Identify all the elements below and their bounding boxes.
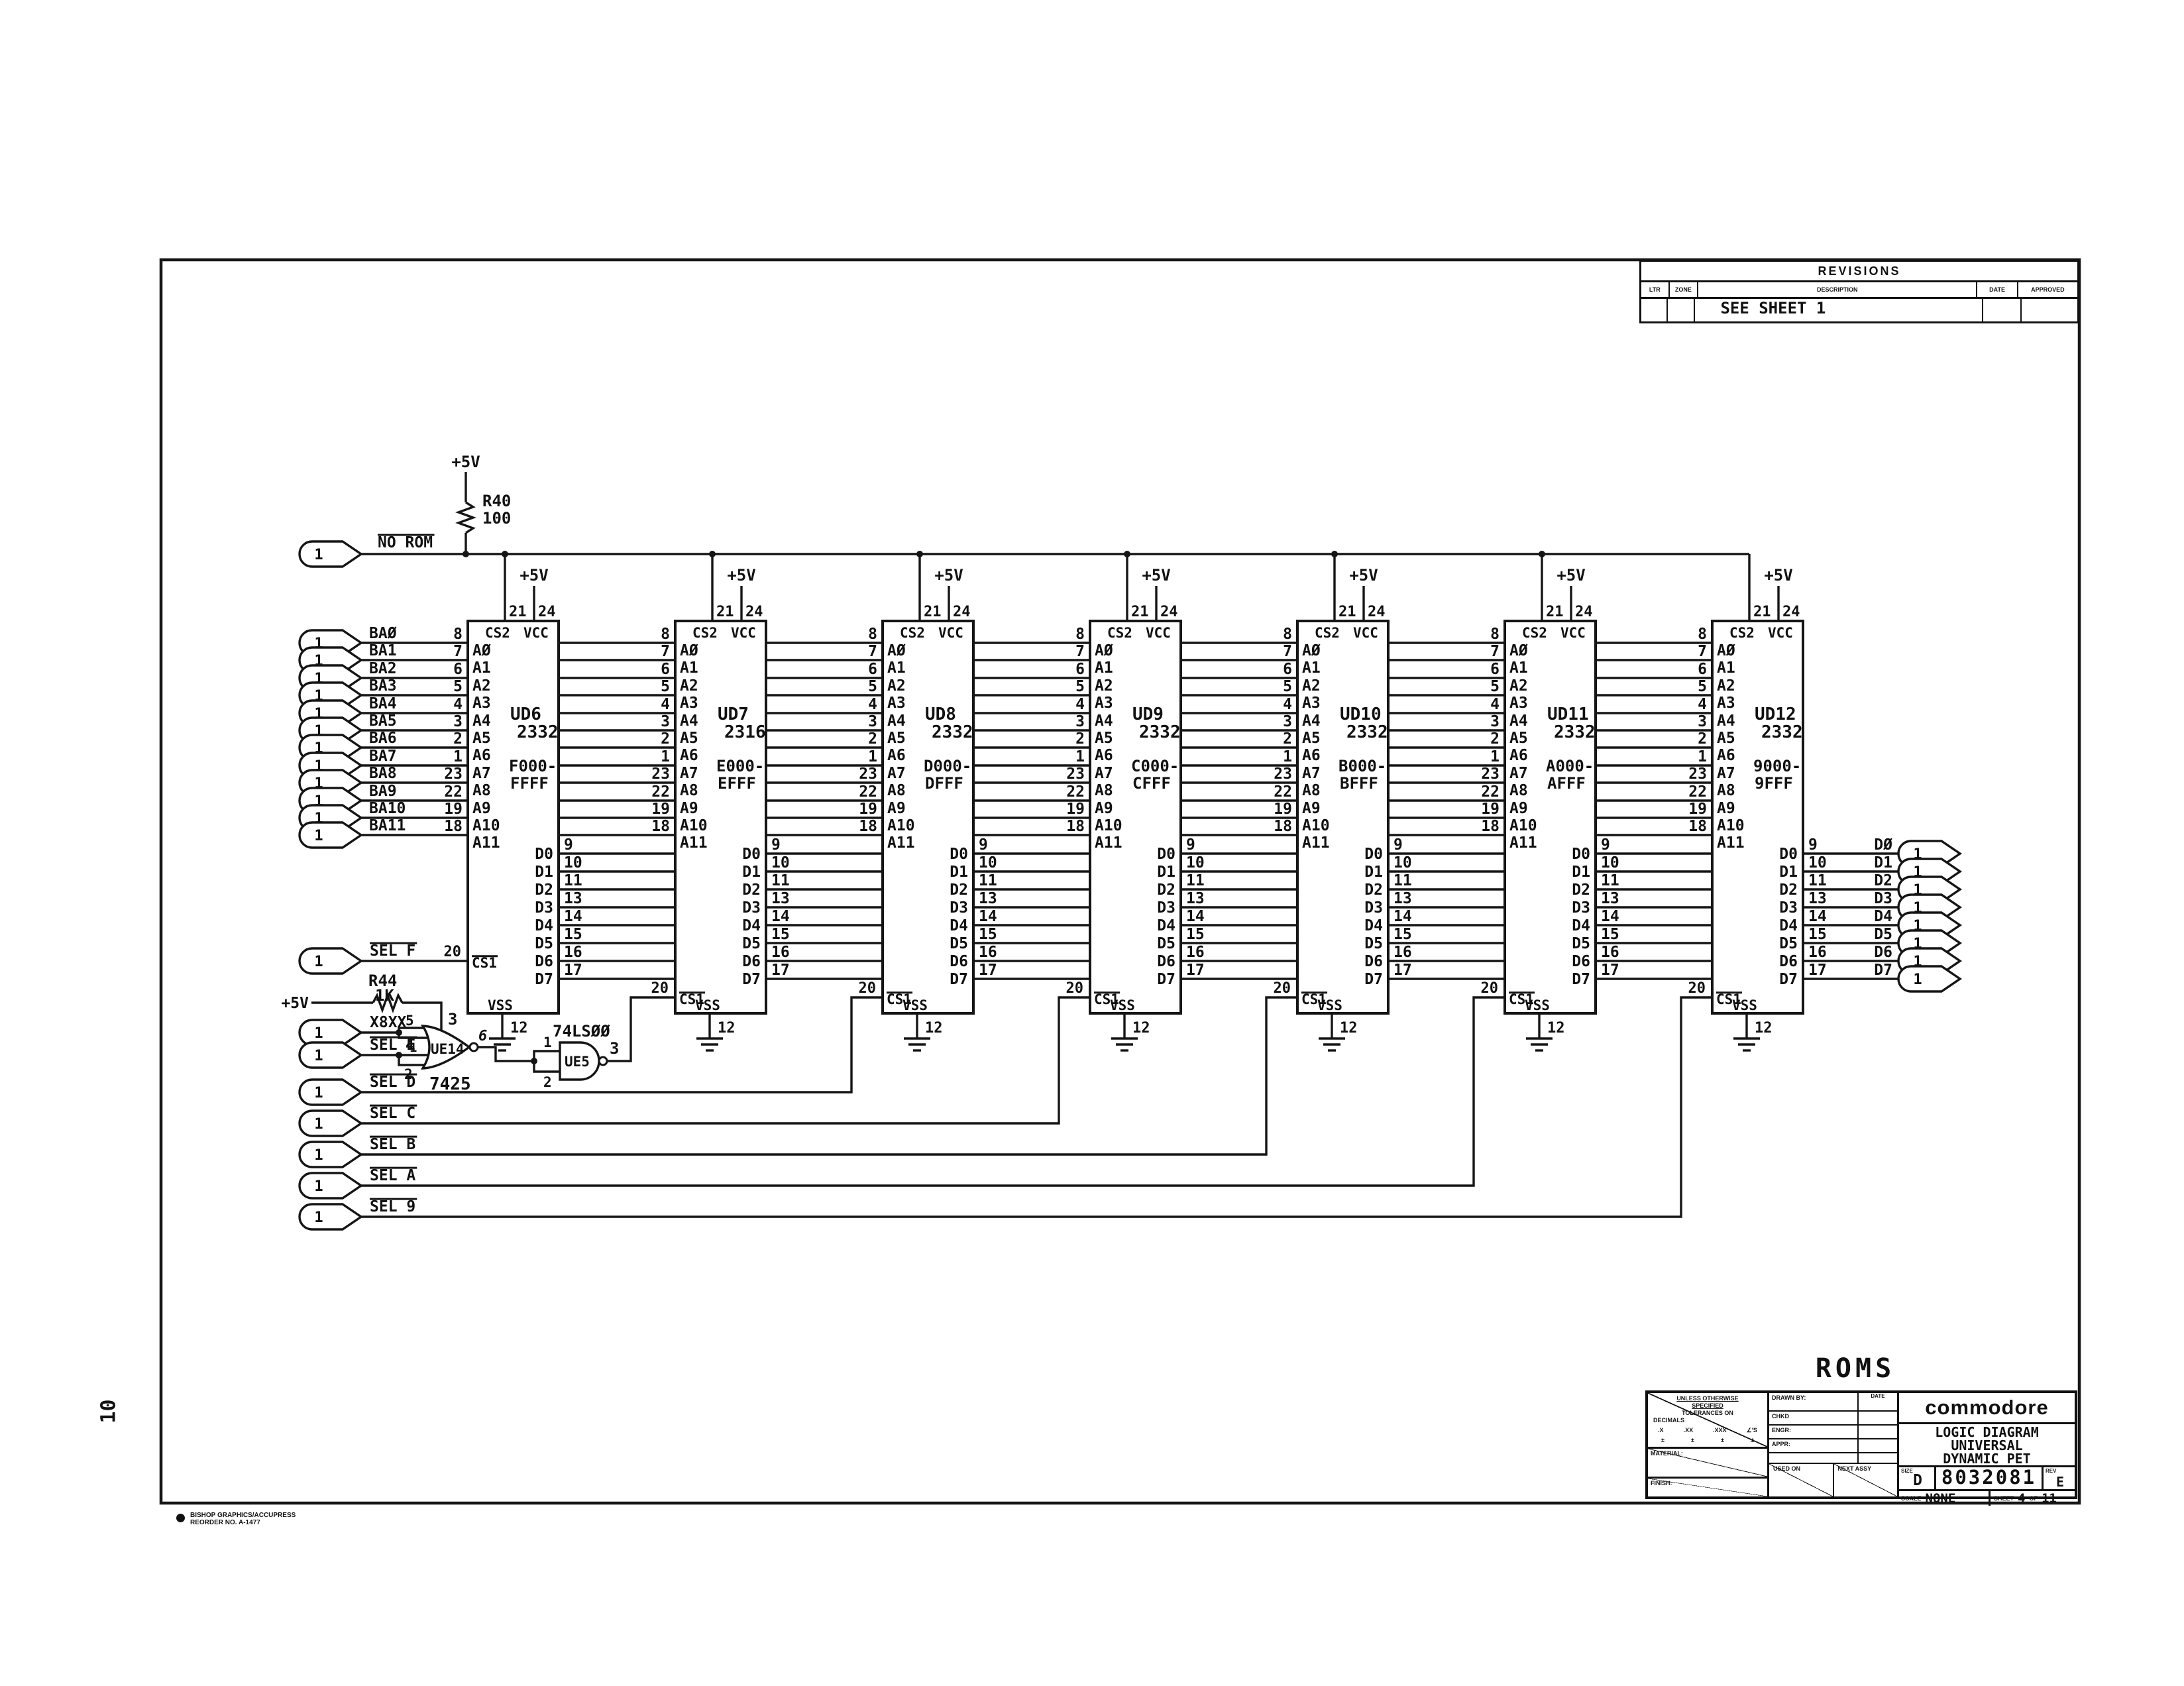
chip-pin-label: VSS [1732, 997, 1757, 1013]
chip-pin-label: A3 [1717, 695, 1735, 712]
chip-pin-label: A1 [1095, 659, 1113, 677]
chip-pin-label: D4 [1779, 917, 1798, 934]
pin-number: 6 [478, 1028, 487, 1044]
chip-pin-label: A2 [680, 677, 698, 695]
pin-number: 8 [1490, 626, 1500, 643]
pin-number: 23 [1481, 765, 1500, 783]
chip-pin-label: AØ [1717, 642, 1735, 659]
pin-number: 11 [1393, 872, 1412, 889]
pin-number: 17 [1186, 962, 1205, 979]
chip-pin-label: A10 [1717, 817, 1745, 834]
signal-label: BA3 [369, 677, 397, 695]
signal-label: BA6 [369, 730, 397, 747]
rail-label: +5V [519, 566, 548, 585]
chip-pin-label: A2 [472, 677, 491, 695]
pin-number: 23 [651, 765, 670, 783]
approval-column: DRAWN BY: DATE CHKD ENGR: APPR: USED ON [1769, 1393, 1899, 1496]
gate-part: 74LSØØ [553, 1022, 610, 1040]
chip-ref: UD12 [1755, 704, 1796, 724]
revision-row: SEE SHEET 1 [1641, 299, 2077, 321]
chip-part: 2332 [1346, 722, 1388, 742]
pin-number: 13 [1808, 890, 1827, 907]
pin-number: 2 [868, 730, 877, 748]
chip-pin-label: D2 [1572, 881, 1590, 899]
pin-number: 9 [1393, 836, 1403, 854]
chip-address-range: AFFF [1547, 774, 1586, 793]
pin-number: 21 [1131, 604, 1149, 620]
signal-label: BA2 [369, 660, 397, 677]
junction-dot [463, 551, 469, 557]
pin-number: 16 [564, 944, 582, 961]
pin-number: 22 [651, 783, 670, 801]
pin-number: 16 [979, 944, 997, 961]
data-connectors: 1DØ1D11D21D31D41D51D61D7 [1874, 836, 1960, 991]
pin-number: 4 [1283, 696, 1292, 713]
chip-pin-label: AØ [887, 642, 906, 659]
chip-address-range: E000- [716, 757, 764, 775]
pin-number: 11 [771, 872, 790, 889]
chip-pin-label: A8 [1302, 782, 1321, 799]
pin-number: 9 [1601, 836, 1610, 854]
pin-number: 16 [771, 944, 790, 961]
chip-pin-label: CS1 [472, 955, 497, 971]
chip-pin-label: D5 [1572, 935, 1590, 952]
col-ltr: LTR [1641, 282, 1670, 297]
chip-pin-label: A11 [1717, 834, 1745, 852]
pin-number: 1 [453, 748, 463, 765]
pin-number: 7 [661, 643, 670, 660]
chip-pin-label: A5 [472, 730, 491, 747]
chip-pin-label: A3 [1302, 695, 1321, 712]
pin-number: 9 [771, 836, 781, 854]
pin-number: 3 [1283, 713, 1292, 730]
appr-cell: APPR: [1769, 1439, 1857, 1452]
title-block: UNLESS OTHERWISE SPECIFIED TOLERANCES ON… [1645, 1390, 2077, 1499]
pin-number: 6 [1490, 661, 1500, 678]
pin-number: 24 [953, 604, 971, 620]
pin-number: 23 [859, 765, 877, 783]
pin-number: 22 [1066, 783, 1085, 801]
pin-number: 3 [448, 1010, 457, 1029]
pin-number: 20 [444, 944, 462, 960]
pin-number: 2 [661, 730, 670, 748]
pin-number: 6 [661, 661, 670, 678]
chip-pin-label: D2 [1157, 881, 1175, 899]
chip-pin-label: D4 [1572, 917, 1590, 934]
pin-number: 11 [564, 872, 582, 889]
pin-number: 13 [1186, 890, 1205, 907]
connector-flag-icon [300, 1142, 361, 1167]
chip-pin-label: D3 [1779, 899, 1798, 917]
pin-number: 12 [925, 1020, 943, 1037]
chip-address-range: F000- [509, 757, 557, 775]
sheet-cell: SHEET 4 OF 11 [1991, 1491, 2075, 1506]
pin-number: 5 [661, 678, 670, 695]
connector-tag: 1 [314, 1178, 323, 1195]
signal-label: D2 [1874, 872, 1892, 889]
pin-number: 17 [1393, 962, 1412, 979]
pin-number: 14 [771, 908, 790, 925]
chip-pin-label: A9 [887, 800, 906, 817]
pin-number: 16 [1186, 944, 1205, 961]
chip-pin-label: D0 [1364, 846, 1383, 863]
chip-address-range: EFFF [718, 774, 756, 793]
signal-label: BA10 [369, 800, 406, 817]
chip-pin-label: A7 [1302, 765, 1321, 782]
chip-ref: UD9 [1132, 704, 1164, 724]
chip-pin-label: D6 [1572, 953, 1590, 970]
chip-pin-label: A2 [1095, 677, 1113, 695]
chip-address-range: CFFF [1132, 774, 1171, 793]
chip-pin-label: A8 [1095, 782, 1113, 799]
chip-pin-label: A6 [1302, 747, 1321, 764]
pin-number: 4 [1490, 696, 1500, 713]
pin-number: 24 [1368, 604, 1386, 620]
pin-number: 7 [453, 643, 463, 660]
company-logo: commodore [1899, 1393, 2075, 1424]
connector-tag: 1 [314, 1048, 323, 1064]
pin-number: 17 [1601, 962, 1619, 979]
pin-number: 14 [1186, 908, 1205, 925]
pin-number: 20 [1481, 980, 1499, 997]
pin-number: 23 [1688, 765, 1707, 783]
chip-pin-label: A6 [887, 747, 906, 764]
signal-label: D3 [1874, 890, 1892, 907]
signal-label: SEL 9 [370, 1198, 415, 1215]
margin-sheet-number: 10 [97, 1399, 121, 1423]
chip-pin-label: A4 [680, 712, 698, 730]
chip-pin-label: A4 [1302, 712, 1321, 730]
chip-pin-label: A2 [1717, 677, 1735, 695]
chip-pin-label: CS2 [692, 625, 718, 641]
pin-number: 9 [979, 836, 988, 854]
inverter-bubble-icon [599, 1057, 607, 1065]
signal-label: D6 [1874, 944, 1892, 961]
junction-dot [1124, 551, 1130, 557]
chip-pin-label: VCC [938, 625, 963, 641]
chip-pin-label: A1 [1509, 659, 1528, 677]
chip-pin-label: VCC [1560, 625, 1586, 641]
pin-number: 21 [1546, 604, 1564, 620]
chip-pin-label: D2 [950, 881, 968, 899]
chip-pin-label: D1 [950, 864, 968, 881]
rev-cell: REV E [2044, 1467, 2075, 1489]
pin-number: 8 [868, 626, 877, 643]
pin-number: 18 [1274, 818, 1292, 835]
chip-pin-label: D7 [535, 971, 553, 988]
chip-pin-label: A7 [472, 765, 491, 782]
pin-number: 18 [1481, 818, 1500, 835]
pin-number: 1 [868, 748, 877, 765]
chip-pin-label: A5 [1717, 730, 1735, 747]
pin-number: 16 [1601, 944, 1619, 961]
rail-label: +5V [934, 566, 963, 585]
chip-pin-label: D1 [1779, 864, 1798, 881]
scale-cell: SCALE NONE [1899, 1491, 1991, 1506]
pin-number: 19 [444, 801, 463, 818]
identity-column: commodore LOGIC DIAGRAM UNIVERSAL DYNAMI… [1899, 1393, 2075, 1496]
date-cell: DATE [1857, 1393, 1897, 1410]
chip-pin-label: A9 [680, 800, 698, 817]
gate-ref: UE5 [565, 1054, 590, 1070]
pin-number: 15 [1808, 926, 1827, 943]
chip-pin-label: A1 [887, 659, 906, 677]
chip-pin-label: D3 [535, 899, 553, 917]
chip-pin-label: CS2 [485, 625, 510, 641]
pin-number: 12 [1340, 1020, 1358, 1037]
pin-number: 12 [1755, 1020, 1773, 1037]
connector-tag: 1 [314, 1116, 323, 1133]
pin-number: 20 [651, 980, 669, 997]
chip-pin-label: A11 [1509, 834, 1537, 852]
signal-label: NO ROM [378, 534, 433, 551]
chip-pin-label: D7 [1364, 971, 1383, 988]
chip-pin-label: AØ [1509, 642, 1528, 659]
pin-number: 22 [1688, 783, 1707, 801]
signal-label: D4 [1874, 908, 1892, 925]
chip-pin-label: A11 [1095, 834, 1122, 852]
chip-pin-label: D1 [535, 864, 553, 881]
signal-label: D7 [1874, 962, 1892, 979]
chip-pin-label: D6 [535, 953, 553, 970]
chip-pin-label: D0 [1157, 846, 1175, 863]
chip-pin-label: D5 [1779, 935, 1798, 952]
chip-pin-label: A9 [472, 800, 491, 817]
chip-pin-label: A2 [1302, 677, 1321, 695]
gate-ref: UE14 [431, 1041, 464, 1057]
pin-number: 2 [1490, 730, 1500, 748]
chip-address-range: C000- [1131, 757, 1179, 775]
chip-address-range: BFFF [1340, 774, 1378, 793]
pin-number: 4 [1075, 696, 1085, 713]
revision-description: SEE SHEET 1 [1695, 299, 1983, 321]
signal-label: SEL F [370, 942, 415, 960]
col-approved: APPROVED [2018, 282, 2077, 297]
chip-pin-label: D4 [742, 917, 761, 934]
chip-ref: UD10 [1340, 704, 1382, 724]
chip-pin-label: VCC [1768, 625, 1793, 641]
pin-number: 12 [1547, 1020, 1565, 1037]
pin-number: 5 [868, 678, 877, 695]
pin-number: 22 [1481, 783, 1500, 801]
chip-address-range: D000- [924, 757, 971, 775]
pin-number: 11 [1808, 872, 1827, 889]
pin-number: 19 [1481, 801, 1500, 818]
chip-pin-label: A8 [680, 782, 698, 799]
pin-number: 2 [453, 730, 463, 748]
connector-tag: 1 [314, 1147, 323, 1164]
chip-pin-label: D3 [950, 899, 968, 917]
pin-number: 1 [1490, 748, 1500, 765]
chip-address-range: FFFF [510, 774, 549, 793]
pin-number: 24 [1782, 604, 1800, 620]
revisions-title: REVISIONS [1641, 262, 2077, 282]
pin-number: 17 [564, 962, 582, 979]
used-on-cell: USED ON [1769, 1464, 1834, 1496]
chip-pin-label: A6 [680, 747, 698, 764]
chip-part: 2332 [1554, 722, 1596, 742]
pin-number: 23 [1066, 765, 1085, 783]
pin-number: 18 [651, 818, 670, 835]
pin-number: 5 [1075, 678, 1085, 695]
pin-number: 6 [1698, 661, 1707, 678]
chip-address-range: 9FFF [1755, 774, 1793, 793]
connector-flag-icon [300, 822, 361, 848]
chip-pin-label: D1 [742, 864, 761, 881]
connector-flag-icon [300, 1204, 361, 1229]
signal-label: BAØ [369, 625, 397, 642]
pin-number: 3 [661, 713, 670, 730]
signal-label: BA11 [369, 817, 406, 834]
pin-number: 15 [1393, 926, 1412, 943]
pin-number: 16 [1808, 944, 1827, 961]
chip-pin-label: D0 [1779, 846, 1798, 863]
connector-flag-icon [300, 948, 361, 974]
rail-label: +5V [1349, 566, 1378, 585]
chip-pin-label: A10 [1302, 817, 1330, 834]
chip-pin-label: A4 [887, 712, 906, 730]
pin-number: 1 [1283, 748, 1292, 765]
chip-pin-label: A8 [1509, 782, 1528, 799]
drawing-caption: ROMS [1776, 1353, 1935, 1384]
pin-number: 7 [1075, 643, 1085, 660]
rev-value: E [2046, 1474, 2075, 1490]
pin-number: 15 [979, 926, 997, 943]
chip-pin-label: A1 [1717, 659, 1735, 677]
chip-pin-label: A3 [472, 695, 491, 712]
chip-part: 2332 [517, 722, 559, 742]
pin-number: 15 [564, 926, 582, 943]
chip-pin-label: A3 [887, 695, 906, 712]
pin-number: 6 [868, 661, 877, 678]
chip-pin-label: D1 [1572, 864, 1590, 881]
signal-label: SEL B [370, 1136, 415, 1153]
chip-pin-label: D6 [1364, 953, 1383, 970]
signal-label: BA9 [369, 783, 397, 800]
chip-pin-label: D5 [742, 935, 761, 952]
size-value: D [1901, 1474, 1934, 1487]
chip-pin-label: D6 [742, 953, 761, 970]
pin-number: 14 [1393, 908, 1412, 925]
chip-pin-label: A7 [1717, 765, 1735, 782]
chip-pin-label: D4 [535, 917, 553, 934]
pin-number: 21 [716, 604, 734, 620]
chip-pin-label: A1 [1302, 659, 1321, 677]
vendor-note: BISHOP GRAPHICS/ACCUPRESS REORDER NO. A-… [176, 1512, 296, 1526]
pin-number: 10 [771, 854, 790, 871]
connector-flag-icon [300, 1080, 361, 1105]
chip-pin-label: A9 [1509, 800, 1528, 817]
next-assy-cell: NEXT ASSY [1834, 1464, 1898, 1496]
revisions-header: LTR ZONE DESCRIPTION DATE APPROVED [1641, 282, 2077, 299]
chip-pin-label: A10 [1095, 817, 1122, 834]
chip-pin-label: A8 [472, 782, 491, 799]
chip-pin-label: A6 [1095, 747, 1113, 764]
chip-ref: UD8 [925, 704, 956, 724]
chip-pin-label: A5 [680, 730, 698, 747]
pin-number: 17 [979, 962, 997, 979]
pin-number: 20 [1274, 980, 1291, 997]
chip-pin-label: A6 [472, 747, 491, 764]
pin-number: 21 [1753, 604, 1771, 620]
pin-number: 12 [1132, 1020, 1150, 1037]
connector-flag-icon [1898, 966, 1960, 991]
pin-number: 20 [859, 980, 877, 997]
pin-number: 5 [406, 1013, 414, 1029]
chip-pin-label: VCC [523, 625, 549, 641]
chip-pin-label: AØ [1095, 642, 1113, 659]
pin-number: 5 [1698, 678, 1707, 695]
tolerance-note: UNLESS OTHERWISE SPECIFIED TOLERANCES ON… [1648, 1393, 1767, 1449]
pin-number: 8 [1075, 626, 1085, 643]
chip-pin-label: VSS [488, 997, 513, 1013]
chip-pin-label: A7 [1095, 765, 1113, 782]
chip-pin-label: D4 [950, 917, 968, 934]
chip-pin-label: A8 [887, 782, 906, 799]
connector-tag: 1 [1913, 972, 1922, 988]
pin-number: 3 [868, 713, 877, 730]
chip-pin-label: D7 [1157, 971, 1175, 988]
chip-pin-label: D7 [950, 971, 968, 988]
chip-pin-label: CS2 [1107, 625, 1132, 641]
resistor-value: 100 [482, 509, 511, 528]
vendor-dot-icon [176, 1514, 185, 1522]
connector-tag: 1 [314, 1209, 323, 1226]
pin-number: 17 [771, 962, 790, 979]
chip-pin-label: A6 [1717, 747, 1735, 764]
junction-dot [1539, 551, 1545, 557]
signal-label: BA5 [369, 712, 397, 730]
pin-number: 18 [859, 818, 877, 835]
pin-number: 22 [1274, 783, 1292, 801]
pin-number: 24 [1160, 604, 1178, 620]
chip-pin-label: AØ [1302, 642, 1321, 659]
chip-pin-label: VCC [1353, 625, 1378, 641]
chip-pin-label: D3 [1572, 899, 1590, 917]
pin-number: 12 [510, 1020, 528, 1037]
pin-number: 13 [771, 890, 790, 907]
sheet-value: 4 [2018, 1491, 2025, 1506]
rail-label: +5V [1764, 566, 1792, 585]
pin-number: 10 [1186, 854, 1205, 871]
pin-number: 11 [1601, 872, 1619, 889]
signal-label: D1 [1874, 854, 1892, 871]
pin-number: 5 [1283, 678, 1292, 695]
signal-label: SEL A [370, 1167, 415, 1184]
pin-number: 15 [1601, 926, 1619, 943]
pin-number: 8 [661, 626, 670, 643]
chip-pin-label: D2 [1779, 881, 1798, 899]
pin-number: 18 [444, 818, 463, 835]
chip-pin-label: A10 [680, 817, 708, 834]
chip-pin-label: A9 [1717, 800, 1735, 817]
pin-number: 2 [1075, 730, 1085, 748]
scale-value: NONE [1926, 1491, 1956, 1506]
chip-pin-label: A3 [680, 695, 698, 712]
chip-pin-label: A11 [472, 834, 500, 852]
pin-number: 18 [1066, 818, 1085, 835]
connector-tag: 1 [314, 1025, 323, 1042]
rail-label: +5V [1556, 566, 1585, 585]
pin-number: 20 [1066, 980, 1084, 997]
pin-number: 8 [453, 626, 463, 643]
pin-number: 23 [444, 765, 463, 783]
pin-number: 5 [453, 678, 463, 695]
chip-pin-label: D0 [1572, 846, 1590, 863]
chip-pin-label: AØ [680, 642, 698, 659]
pin-number: 13 [564, 890, 582, 907]
pin-number: 14 [1601, 908, 1619, 925]
